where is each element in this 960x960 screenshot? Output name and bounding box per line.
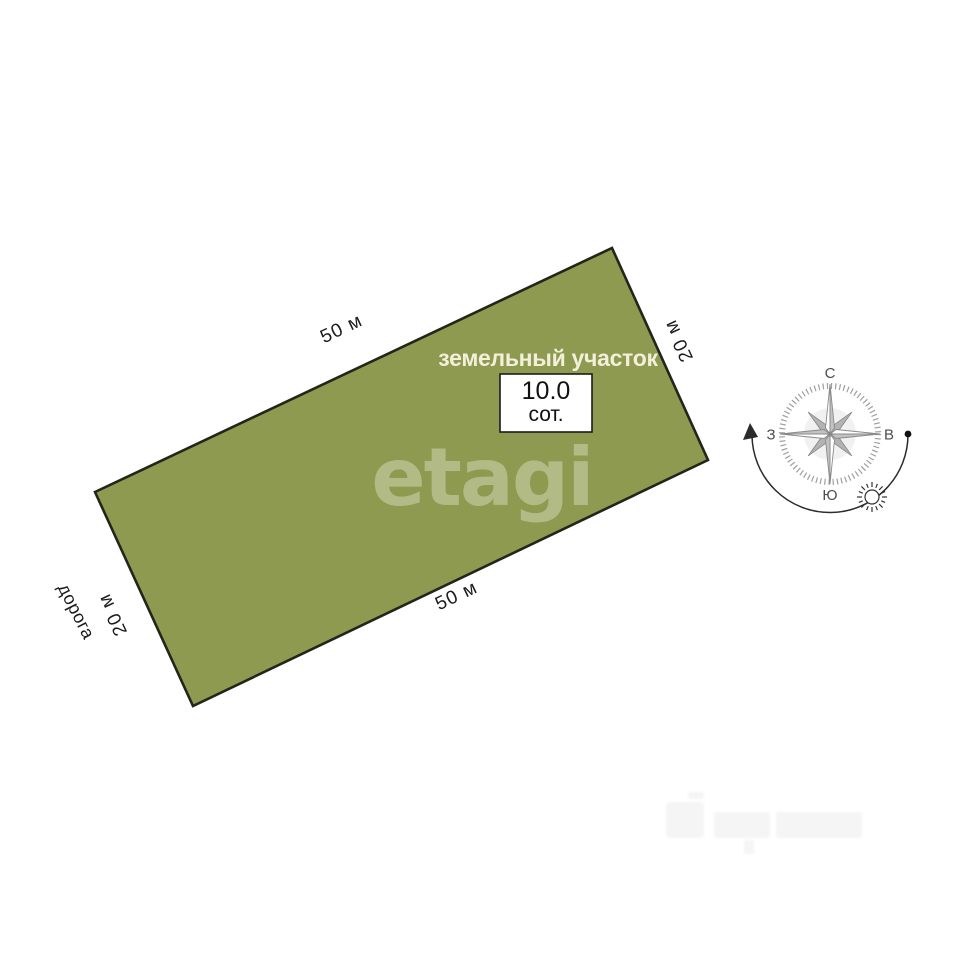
- compass-center-dot: [827, 431, 832, 436]
- land-plot-diagram: etagi земельный участок 10.0 сот. 50 м 5…: [0, 0, 960, 960]
- dimension-top: 50 м: [317, 310, 366, 348]
- faint-watermark: [666, 792, 862, 854]
- dimension-right: 20 м: [660, 316, 698, 365]
- diagram-canvas: etagi земельный участок 10.0 сот. 50 м 5…: [0, 0, 960, 960]
- sun-path-start-dot: [905, 431, 912, 438]
- compass-label-north: С: [825, 365, 836, 382]
- dimension-left: 20 м: [94, 590, 132, 639]
- road-label: дорога: [54, 580, 99, 643]
- sun-icon: [857, 482, 887, 512]
- plot-title: земельный участок: [438, 345, 658, 371]
- compass-rose: С В З Ю: [766, 365, 894, 504]
- area-unit: сот.: [528, 403, 563, 426]
- compass-label-south: Ю: [822, 487, 837, 504]
- compass-label-west: З: [766, 427, 775, 444]
- etagi-watermark: etagi: [371, 431, 592, 524]
- compass-label-east: В: [884, 427, 894, 444]
- sun-path-arrowhead: [743, 423, 758, 440]
- area-value: 10.0: [522, 377, 571, 405]
